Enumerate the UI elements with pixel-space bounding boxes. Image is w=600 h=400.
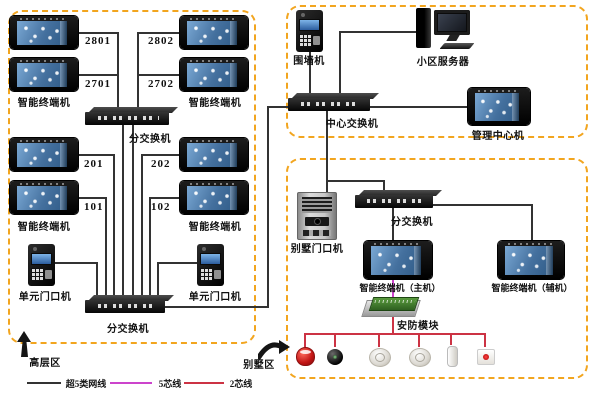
highrise-zone-arrow: [17, 331, 31, 357]
villa-aux-terminal: [498, 241, 564, 279]
branch-switch-label: 分交换机: [122, 130, 178, 145]
central-switch: [288, 98, 370, 111]
door-keypad: [31, 268, 43, 281]
door-screen: [200, 253, 221, 265]
monitor-stand: [446, 35, 459, 41]
cat5-cable: [149, 197, 180, 199]
sensor-gas-detector: [409, 348, 431, 367]
2core-security-bus: [304, 333, 486, 335]
2core-cable: [484, 333, 486, 347]
2core-cable: [378, 333, 380, 347]
intelligent-terminal-2701: [10, 58, 78, 91]
room-number: 202: [151, 158, 171, 170]
room-number: 101: [84, 201, 104, 213]
cat5-cable: [78, 197, 107, 199]
unit-door-machine-left: [28, 244, 55, 286]
villa-main-terminal-label: 智能终端机（主机）: [354, 281, 446, 294]
sensor-surveillance-camera: [327, 349, 343, 365]
switch-front-ports: [85, 112, 169, 125]
cat5-cable: [78, 154, 115, 156]
mgmt-terminal-label: 管理中心机: [466, 127, 530, 142]
sensor-alarm-siren: [296, 347, 315, 366]
management-center-terminal: [468, 88, 530, 125]
villa-aux-terminal-label: 智能终端机（辅机）: [486, 281, 578, 294]
terminal-screen: [475, 93, 519, 121]
cat5-cable: [138, 74, 180, 76]
cat5-cable: [326, 180, 385, 182]
2core-cable: [418, 333, 420, 347]
room-number: 2802: [148, 35, 174, 47]
intelligent-terminal-2802: [180, 16, 248, 49]
terminal-screen: [17, 143, 67, 167]
cat5-cable: [122, 124, 124, 302]
server-keyboard: [439, 43, 474, 49]
legend-5core-swatch: [110, 382, 152, 384]
door-screen: [299, 19, 320, 31]
door-keypad: [299, 34, 311, 47]
central-switch-label: 中心交换机: [320, 115, 384, 130]
switch-front-ports: [85, 300, 165, 313]
unit-door-label: 单元门口机: [15, 288, 75, 303]
cat5-cable: [531, 204, 533, 241]
sensor-door-contact: [447, 346, 458, 367]
sensor-smoke-detector: [369, 348, 391, 367]
cat5-cable: [137, 32, 139, 112]
community-server: [416, 8, 476, 53]
legend-cat5-label: 超5类网线: [64, 377, 108, 390]
terminal-screen: [187, 21, 237, 45]
terminal-screen: [17, 21, 67, 45]
branch-switch-upper: [85, 112, 169, 125]
branch-switch-lower: [85, 300, 165, 313]
cat5-cable: [157, 262, 197, 264]
room-number: 102: [151, 201, 171, 213]
terminal-screen: [187, 186, 237, 210]
legend-5core-label: 5芯线: [155, 377, 185, 390]
villa-zone-arrow: [258, 340, 290, 360]
door-camera: [33, 247, 37, 251]
cat5-cable: [138, 32, 180, 34]
wall-machine-label: 围墙机: [289, 52, 329, 67]
security-module-label: 安防模块: [390, 317, 446, 332]
server-tower: [416, 8, 431, 48]
legend-cat5-swatch: [27, 382, 61, 384]
villa-switch-label: 分交换机: [384, 213, 440, 228]
module-circuit-board: [369, 297, 420, 311]
door-buttons: [303, 230, 331, 236]
door-camera: [305, 217, 329, 226]
community-intercom-network-diagram: 2801 2802 2701 2702 201 202 101 102 智能终端…: [0, 0, 600, 400]
cat5-cable: [339, 31, 418, 33]
cat5-uplink-cable: [267, 106, 269, 308]
legend-2core-label: 2芯线: [226, 377, 256, 390]
speaker-grille: [302, 197, 332, 213]
cat5-cable: [433, 204, 532, 206]
door-card-reader: [313, 36, 320, 45]
door-card-reader: [214, 270, 221, 279]
security-module: [364, 297, 418, 317]
cat5-cable: [339, 31, 341, 99]
cat5-cable: [117, 32, 119, 112]
2core-cable: [450, 333, 452, 345]
2core-cable: [304, 333, 306, 347]
2core-cable: [334, 333, 336, 347]
room-number: 2801: [85, 35, 111, 47]
intelligent-terminal-102: [180, 181, 248, 214]
terminal-screen: [17, 63, 67, 87]
cat5-cable: [78, 32, 118, 34]
room-number: 2701: [85, 78, 111, 90]
switch-front-ports: [355, 195, 433, 208]
server-label: 小区服务器: [411, 53, 475, 68]
perimeter-wall-machine: [296, 10, 323, 52]
unit-door-machine-right: [197, 244, 224, 286]
room-number: 2702: [148, 78, 174, 90]
villa-door-machine: [297, 192, 337, 240]
door-camera: [202, 247, 206, 251]
cat5-cable: [370, 106, 468, 108]
cat5-cable: [132, 124, 134, 302]
terminal-screen: [187, 63, 237, 87]
terminal-screen: [187, 143, 237, 167]
door-card-reader: [45, 270, 52, 279]
intelligent-terminal-2702: [180, 58, 248, 91]
intelligent-terminal-2801: [10, 16, 78, 49]
door-keypad: [200, 268, 212, 281]
unit-door-label: 单元门口机: [185, 288, 245, 303]
intelligent-terminal-101: [10, 181, 78, 214]
cat5-cable: [113, 154, 115, 302]
cat5-cable: [78, 74, 118, 76]
villa-door-label: 别墅门口机: [288, 240, 346, 255]
villa-main-terminal: [364, 241, 432, 279]
cat5-uplink-cable: [267, 106, 290, 108]
terminal-label: 智能终端机: [14, 94, 74, 109]
legend-2core-swatch: [184, 382, 224, 384]
door-camera: [301, 13, 305, 17]
terminal-screen: [505, 246, 553, 275]
switch-front-ports: [288, 98, 370, 111]
door-screen: [31, 253, 52, 265]
sensor-emergency-button: [477, 349, 495, 365]
villa-branch-switch: [355, 195, 433, 208]
cat5-uplink-cable: [165, 306, 268, 308]
terminal-label: 智能终端机: [185, 218, 245, 233]
terminal-screen: [17, 186, 67, 210]
branch-switch-label: 分交换机: [100, 320, 156, 335]
terminal-screen: [371, 246, 421, 275]
room-number: 201: [84, 158, 104, 170]
intelligent-terminal-201: [10, 138, 78, 171]
cat5-cable: [55, 262, 98, 264]
cat5-cable: [141, 154, 143, 302]
terminal-label: 智能终端机: [14, 218, 74, 233]
terminal-label: 智能终端机: [185, 94, 245, 109]
intelligent-terminal-202: [180, 138, 248, 171]
cat5-cable: [141, 154, 180, 156]
cat5-cable: [105, 197, 107, 302]
server-monitor: [434, 10, 470, 35]
